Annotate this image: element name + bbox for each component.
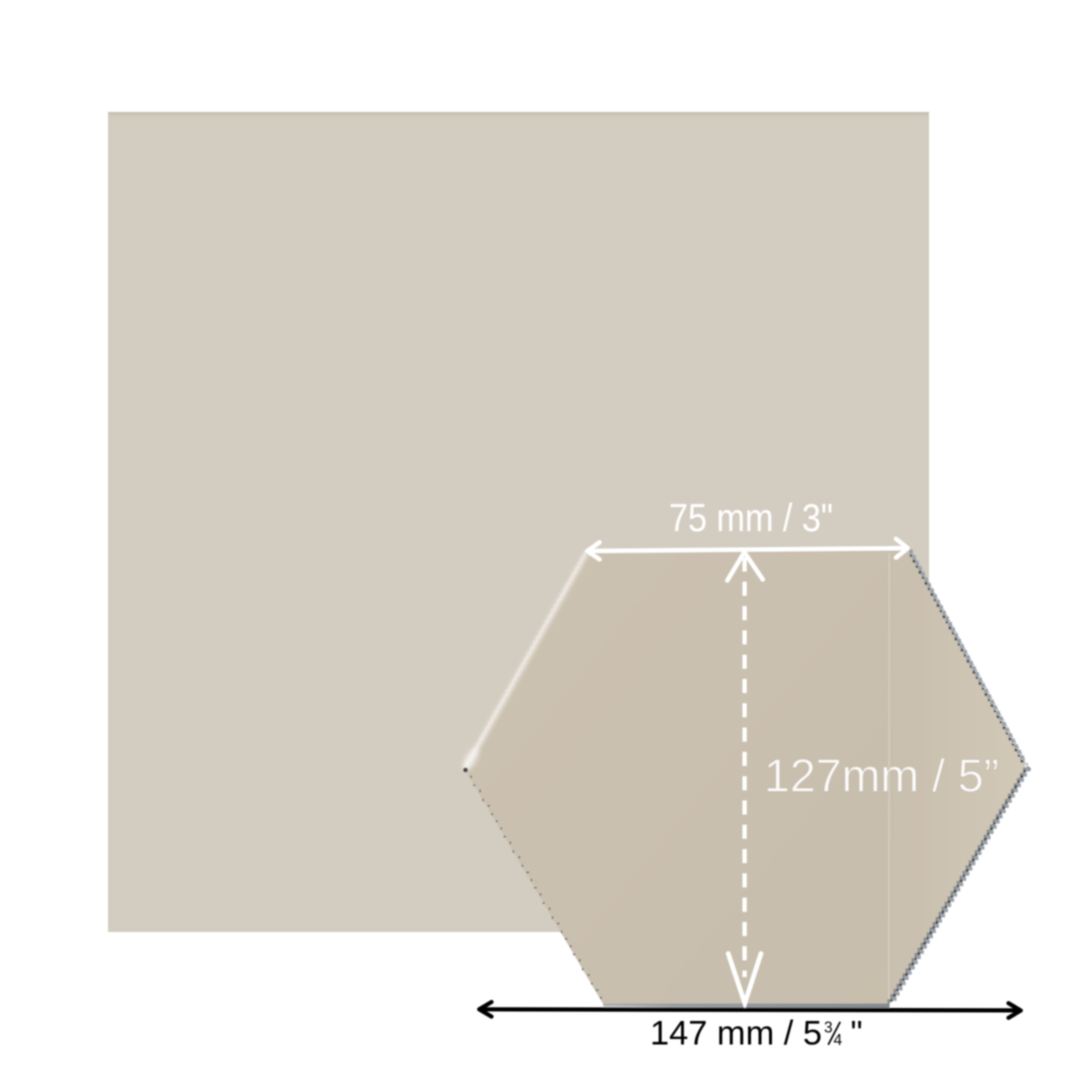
svg-text:4: 4 xyxy=(834,1032,843,1049)
svg-text:3: 3 xyxy=(824,1020,833,1037)
svg-text:127mm / 5”: 127mm / 5” xyxy=(764,750,999,802)
svg-text:75 mm / 3": 75 mm / 3" xyxy=(669,497,833,540)
svg-text:": " xyxy=(851,1015,863,1053)
svg-text:147 mm / 5: 147 mm / 5 xyxy=(650,1015,822,1053)
